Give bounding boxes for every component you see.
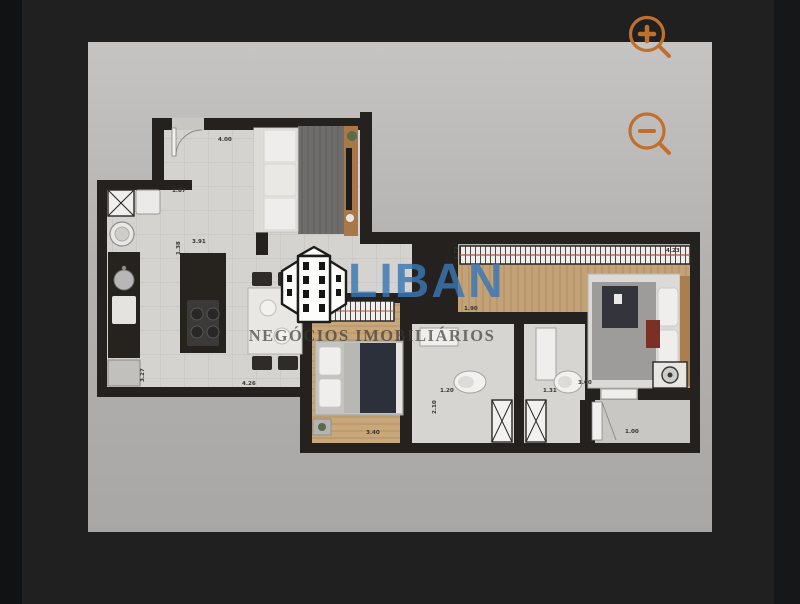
dimension-label: 3.40 [366, 430, 380, 436]
dimension-label: 4.26 [242, 381, 256, 387]
dimension-label: 1.38 [176, 241, 182, 255]
sink [420, 328, 458, 346]
dimension-label: 1.90 [464, 306, 478, 312]
plate [260, 300, 276, 316]
bathroom-2-door [526, 400, 546, 442]
chair [278, 356, 298, 370]
dimension-label: 3.00 [578, 380, 592, 386]
dimension-label: 1.20 [440, 388, 454, 394]
chair [252, 356, 272, 370]
decor-item [346, 214, 354, 222]
zoom-out-button[interactable] [627, 108, 673, 156]
plate [274, 328, 290, 344]
wardrobe-bedroom-1 [460, 246, 690, 264]
dimension-label: 4.00 [218, 137, 232, 143]
dimension-label: 1.72 [454, 246, 460, 260]
throw [646, 320, 660, 348]
zoom-in-icon [627, 11, 673, 59]
tv [346, 148, 352, 210]
sheet-fold [344, 343, 360, 413]
wardrobe-bedroom-2 [318, 301, 394, 321]
viewer-background: 4.001.873.911.384.263.274.231.721.901.20… [0, 0, 800, 604]
right-edge-shadow [774, 0, 800, 604]
blanket [602, 286, 638, 328]
closet-floor [592, 400, 690, 443]
washing-machine [108, 190, 134, 216]
pillow [658, 288, 678, 326]
dimension-label: 1.31 [543, 388, 557, 394]
zoom-in-button[interactable] [627, 11, 673, 59]
left-edge-shadow [0, 0, 22, 604]
bedroom-1-door [601, 389, 637, 399]
laundry-basin [136, 190, 160, 214]
floorplan-drawing: 4.001.873.911.384.263.274.231.721.901.20… [88, 42, 712, 532]
rug [298, 126, 344, 234]
shower [536, 328, 556, 380]
sofa [254, 128, 298, 232]
dimension-label: 1.00 [625, 429, 639, 435]
pillow [319, 347, 341, 375]
dimension-label: 3.27 [140, 368, 146, 382]
dimension-label: 3.91 [192, 239, 206, 245]
floorplan-image: 4.001.873.911.384.263.274.231.721.901.20… [88, 42, 712, 532]
dining-table [248, 288, 302, 354]
bathroom-1-door [492, 400, 512, 442]
fridge [108, 360, 140, 386]
bedroom-1-furniture [588, 274, 690, 399]
dimension-label: 4.23 [666, 248, 680, 254]
chair [252, 272, 272, 286]
dimension-label: 2.10 [432, 400, 438, 414]
duvet [360, 343, 398, 413]
chair [278, 272, 298, 286]
cooktop [187, 300, 219, 346]
kitchen-sink [114, 270, 134, 290]
pillow [319, 379, 341, 407]
dimension-label: 1.87 [172, 188, 186, 194]
plant [347, 131, 357, 141]
zoom-out-icon [627, 108, 673, 156]
living-room-furniture [254, 126, 358, 236]
